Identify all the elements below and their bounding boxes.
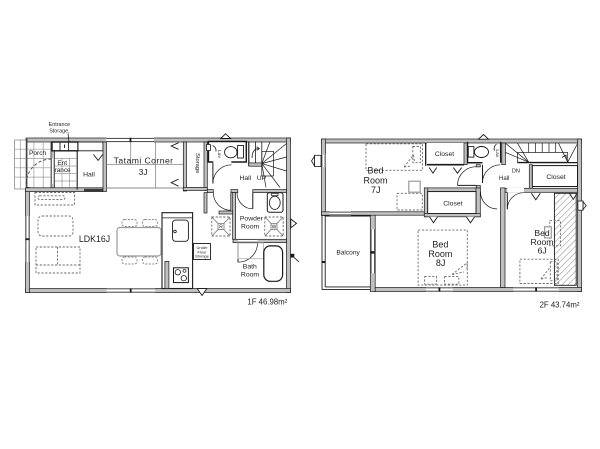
svg-text:Storage,: Storage, [49,129,70,135]
svg-text:Powder: Powder [240,216,264,223]
svg-text:Hall: Hall [239,175,251,182]
svg-text:Lav: Lav [494,149,500,157]
svg-text:8J: 8J [436,258,446,268]
svg-text:UP: UP [257,175,267,182]
svg-text:LDK16J: LDK16J [79,234,110,244]
svg-text:2F 43.74m²: 2F 43.74m² [540,300,580,309]
svg-text:Hall: Hall [499,176,509,182]
svg-text:Bed: Bed [367,166,383,176]
svg-text:Closet: Closet [443,201,462,208]
svg-text:6J: 6J [538,246,547,256]
svg-text:Storage: Storage [195,254,210,259]
svg-text:Bath: Bath [243,264,257,271]
svg-text:Tatami Corner: Tatami Corner [114,155,174,165]
svg-text:Closet: Closet [435,151,454,158]
svg-text:7J: 7J [371,185,381,195]
svg-text:1F 46.98m²: 1F 46.98m² [247,298,287,307]
svg-text:Entrance: Entrance [49,122,71,128]
svg-text:rance: rance [55,167,71,174]
svg-text:Balcony: Balcony [336,249,360,256]
svg-text:Room: Room [241,223,259,230]
svg-text:Room: Room [363,175,387,185]
svg-text:Hall: Hall [83,171,95,178]
svg-text:R: R [219,225,223,231]
svg-text:Porch: Porch [29,150,47,157]
svg-text:W: W [272,225,277,231]
svg-text:Lav: Lav [216,150,222,158]
svg-text:Room: Room [241,271,259,278]
svg-text:3J: 3J [139,168,148,177]
svg-text:Closet: Closet [546,174,565,181]
svg-text:DN: DN [512,168,520,174]
svg-text:Storage: Storage [194,153,200,173]
svg-text:Ent: Ent [57,160,67,167]
